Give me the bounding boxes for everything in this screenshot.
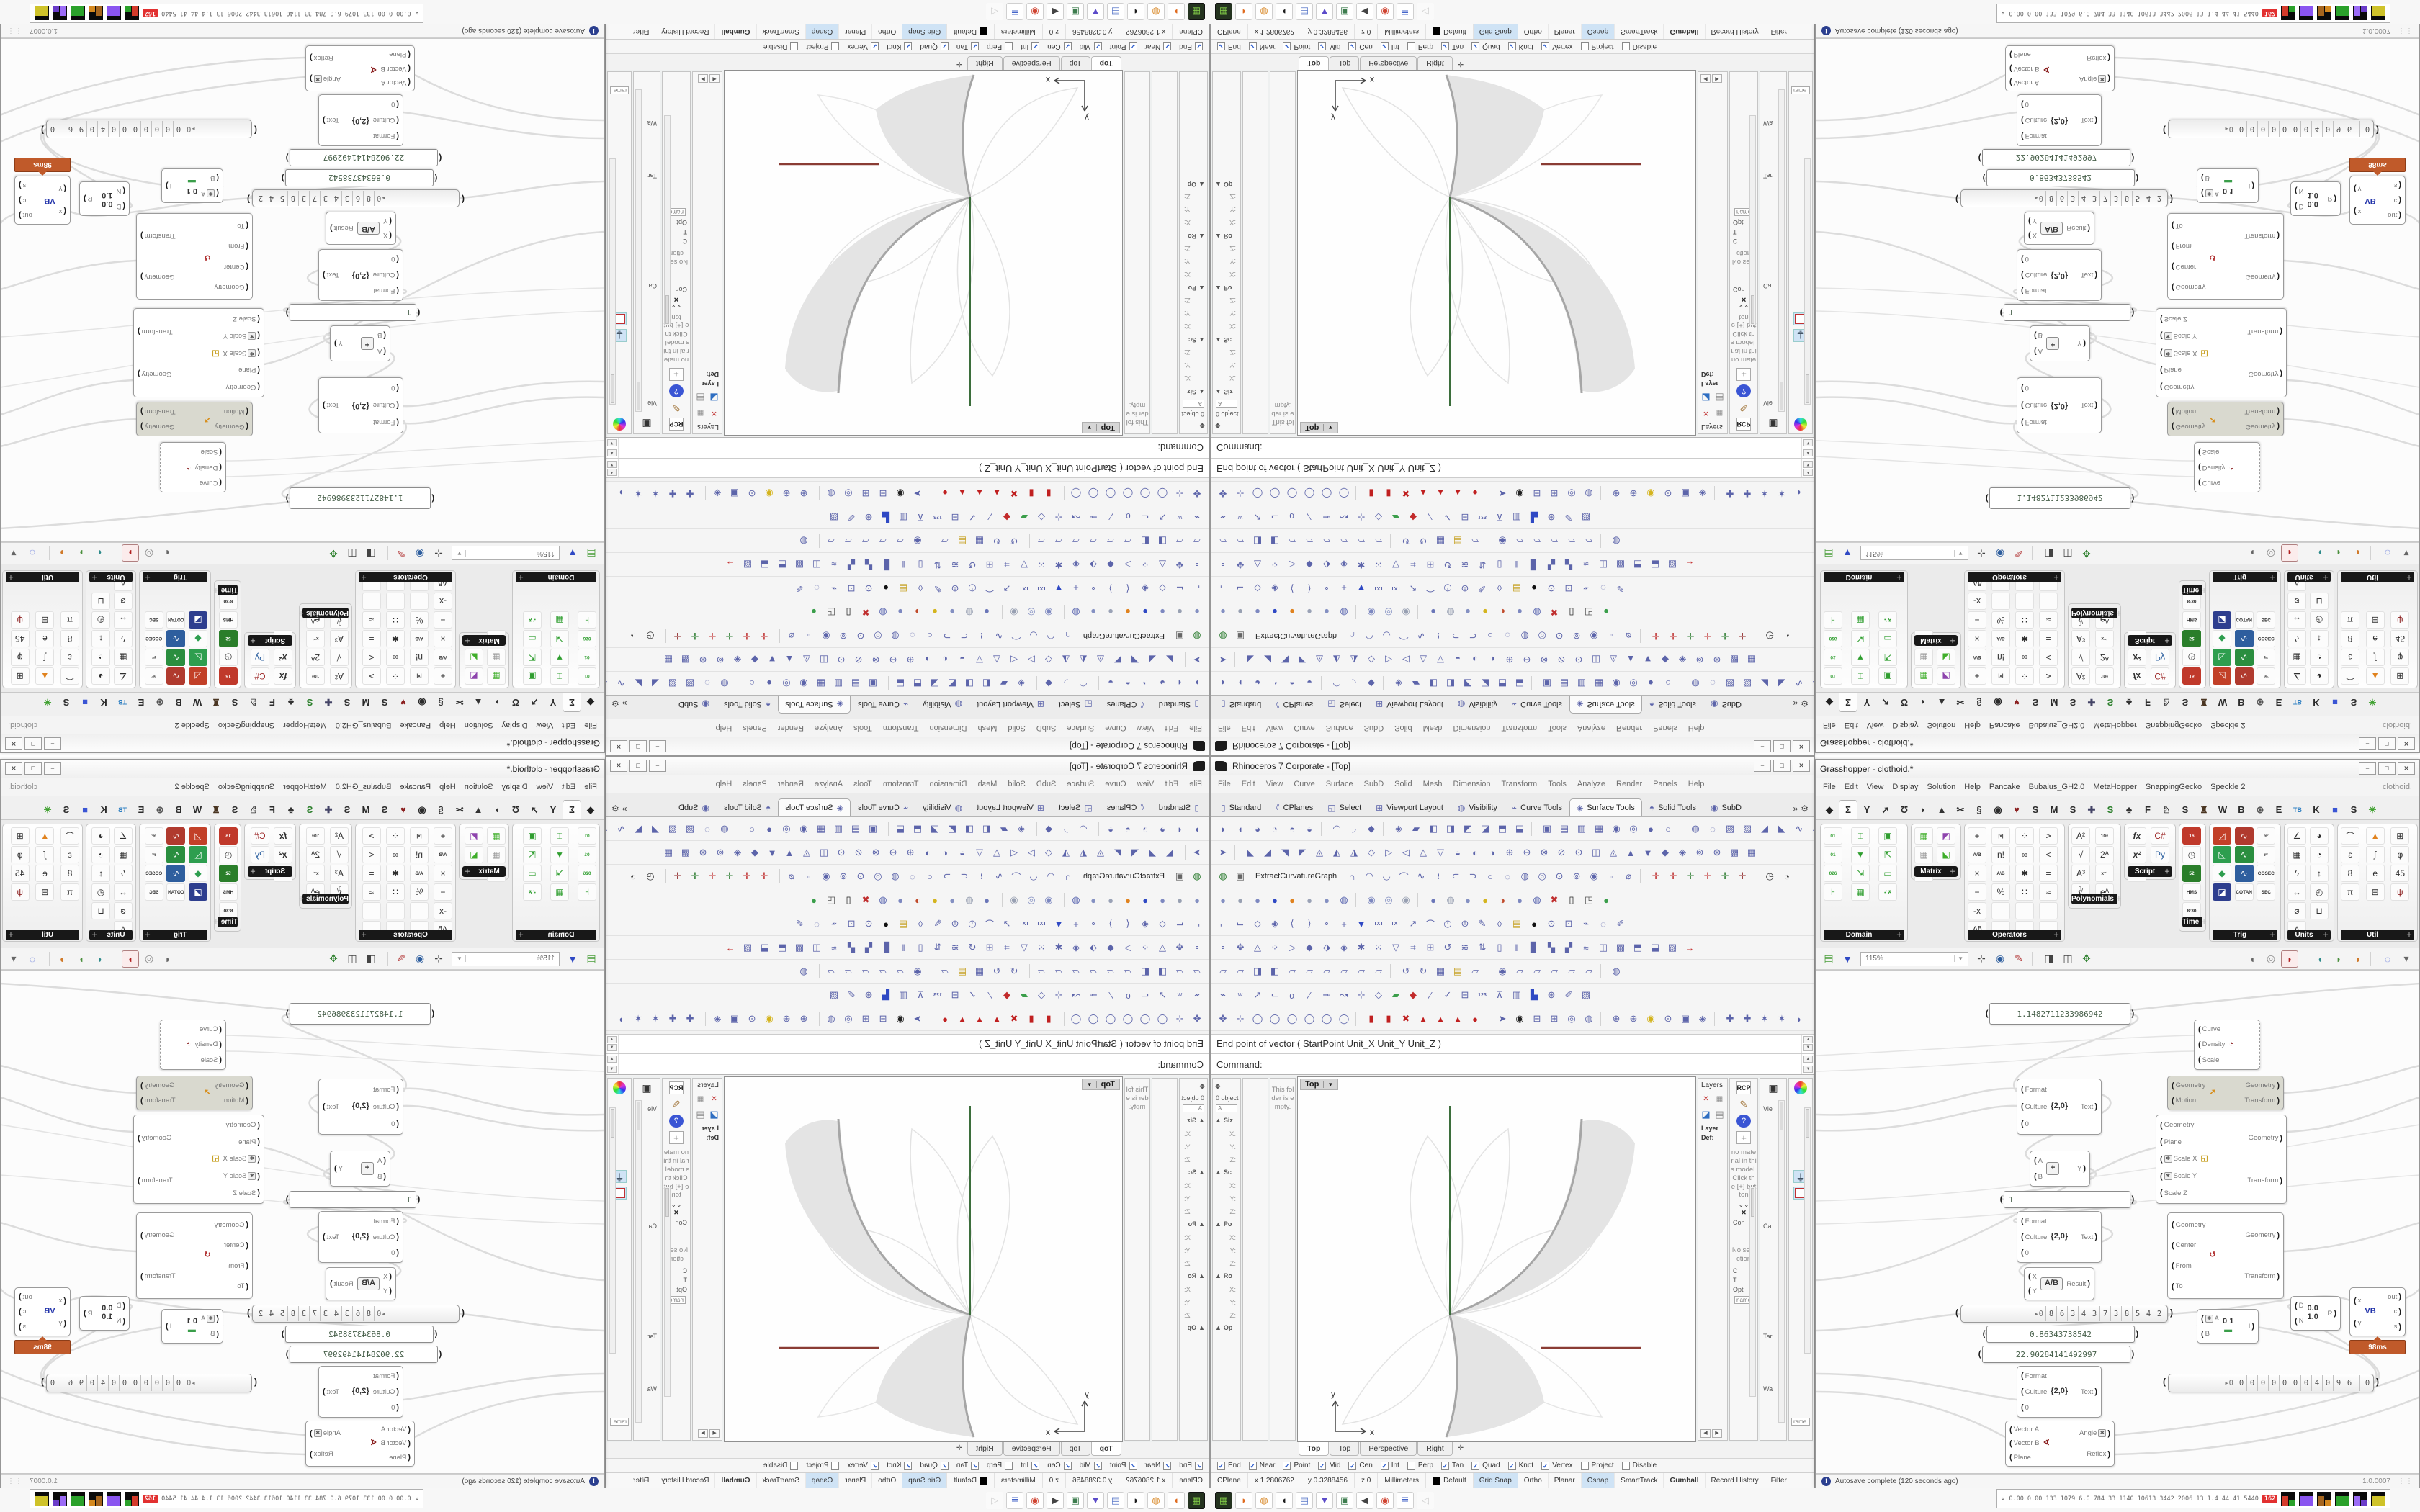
toolbar-icon[interactable]: ⊃: [939, 868, 955, 884]
menu-item[interactable]: Bubalus_GH2.0: [336, 783, 392, 791]
toolbar-icon[interactable]: ●: [1085, 604, 1101, 620]
toolbar-icon[interactable]: ◍: [717, 675, 732, 691]
number-slider[interactable]: ▸0000000040960: [2168, 120, 2374, 138]
palette-icon[interactable]: ⊟: [35, 611, 54, 629]
palette-icon[interactable]: A³: [2071, 630, 2090, 647]
toolbar-icon[interactable]: ◠: [1075, 821, 1091, 837]
toolbar-icon[interactable]: ▱: [1353, 963, 1369, 979]
toolbar-icon[interactable]: ◭: [1075, 652, 1091, 667]
format-component[interactable]: FormatCulture0{2,0}Text: [2017, 377, 2102, 433]
palette-icon[interactable]: ∫: [35, 846, 54, 863]
palette-icon[interactable]: ▦: [487, 827, 506, 845]
osnap-cen[interactable]: ✓Cen: [1047, 1462, 1071, 1470]
toolbar-icon[interactable]: ⊟: [947, 509, 963, 525]
toolbar-icon[interactable]: ▷: [1381, 845, 1397, 860]
toolbar-icon[interactable]: ⊘: [851, 845, 866, 860]
toolbar-icon[interactable]: ▱: [1529, 963, 1545, 979]
input-param[interactable]: Geometry: [223, 382, 260, 391]
toolbar-icon[interactable]: ◗: [1189, 821, 1205, 837]
toolbar-icon[interactable]: ◉: [761, 1011, 777, 1027]
toolbar-icon[interactable]: ‖: [1509, 940, 1525, 955]
toolbar-icon[interactable]: ◉: [1586, 868, 1602, 884]
scale-nu-component[interactable]: GeometryPlane✱Scale X✱Scale YScale Z◱Geo…: [2156, 1115, 2287, 1204]
viewport-tab[interactable]: Right: [1417, 56, 1453, 70]
input-param[interactable]: Format: [2021, 1372, 2047, 1380]
materials-panel[interactable]: RCP ✎ ? + no material in this model. Cli…: [662, 1078, 691, 1441]
palette-icon[interactable]: 8: [60, 630, 79, 647]
menu-item[interactable]: File: [1823, 721, 1836, 729]
toolbar-icon[interactable]: ▥: [895, 987, 911, 1003]
tab-vector[interactable]: ➚: [525, 800, 544, 819]
firefox-icon[interactable]: ◗: [1235, 4, 1252, 21]
rhino-titlebar[interactable]: Rhinoceros 7 Corporate - [Top] −□✕: [1211, 757, 1814, 775]
z-coordinate[interactable]: z 0: [1355, 24, 1378, 39]
rhinoceros-icon[interactable]: ◖: [1127, 1492, 1144, 1509]
output-param[interactable]: Result: [2066, 224, 2090, 233]
toolbar-icon[interactable]: ◷: [964, 916, 980, 932]
gh-category-tab[interactable]: TB: [113, 800, 132, 819]
gh-category-tab[interactable]: S: [2101, 693, 2120, 712]
toolbar-icon[interactable]: ◎: [779, 821, 794, 837]
palette-icon[interactable]: ⊔: [2310, 902, 2329, 919]
toolbar-icon[interactable]: TXT: [1371, 916, 1386, 932]
toolbar-icon[interactable]: ▰: [1016, 509, 1032, 525]
toolbar-icon[interactable]: ◉: [910, 963, 926, 979]
brush-icon[interactable]: ✎: [1736, 1098, 1751, 1111]
toolbar-icon[interactable]: ⌗: [999, 557, 1015, 572]
palette-icon[interactable]: 01: [1824, 846, 1842, 863]
toolbar-icon[interactable]: ▱: [1085, 963, 1101, 979]
menu-item[interactable]: Solution: [1927, 721, 1955, 729]
palette-icon[interactable]: ◩: [465, 827, 483, 845]
palette-icon[interactable]: >: [2039, 667, 2058, 685]
toolbar-icon[interactable]: ▱: [1172, 963, 1188, 979]
osnap-point[interactable]: ✓Point: [1110, 42, 1137, 50]
palette-icon[interactable]: COTAN: [2235, 611, 2254, 629]
toolbar-icon[interactable]: ◯: [1068, 485, 1084, 501]
input-param[interactable]: Scale Z: [223, 315, 260, 323]
palette-icon[interactable]: [362, 902, 381, 919]
panel-value[interactable]: 1: [2004, 1191, 2130, 1208]
move-component[interactable]: GeometryMotion➚GeometryTransform: [136, 402, 253, 436]
palette-icon[interactable]: ∿: [166, 865, 185, 882]
interval-component[interactable]: ✱AB0 1▬I: [2197, 168, 2259, 203]
palette-icon[interactable]: ↕: [91, 865, 110, 882]
number-slider[interactable]: ▸0000000040960: [46, 120, 252, 138]
command-prompt[interactable]: Command: ▲▼: [1211, 437, 1814, 459]
palette-icon[interactable]: α°: [145, 667, 163, 685]
toolbar-icon[interactable]: ◍: [1608, 963, 1624, 979]
palette-icon[interactable]: ≈: [362, 883, 381, 901]
palette-icon[interactable]: ▦: [487, 667, 506, 685]
toolbar-icon[interactable]: ◖: [1809, 485, 1814, 501]
new-viewport-tab-button[interactable]: ✛: [952, 1442, 967, 1454]
palette-icon[interactable]: HMS: [2182, 611, 2201, 629]
input-param[interactable]: ✱Scale Y: [223, 1172, 260, 1181]
x-coordinate[interactable]: x 1.2806762: [1248, 24, 1301, 39]
output-param[interactable]: Result: [330, 224, 354, 233]
toolbar-icon[interactable]: ⊡: [1561, 916, 1577, 932]
toolbar-icon[interactable]: ▱: [1319, 533, 1335, 549]
toolbar-icon[interactable]: ◍: [1443, 604, 1458, 620]
palette-icon[interactable]: C#: [2151, 827, 2169, 845]
palette-icon[interactable]: ∫: [2366, 846, 2385, 863]
gh-category-tab[interactable]: S: [300, 693, 319, 712]
gh-category-tab[interactable]: ♜: [207, 693, 225, 712]
palette-icon[interactable]: −: [434, 611, 452, 629]
toolbar-icon[interactable]: ✶: [1774, 485, 1790, 501]
input-param[interactable]: Vector B: [2009, 64, 2040, 73]
input-param[interactable]: Y: [2028, 1287, 2037, 1295]
selection-region-icon[interactable]: ◌: [2379, 950, 2396, 968]
panel-value[interactable]: 0.86343738542: [1986, 169, 2135, 186]
toolbar-icon[interactable]: ⊚: [835, 628, 851, 644]
toolbar-icon[interactable]: ◔: [1137, 675, 1153, 691]
gh-category-tab[interactable]: TB: [2288, 693, 2307, 712]
gh-category-tab[interactable]: ✚: [319, 800, 338, 819]
toolbar-icon[interactable]: ▰: [1388, 987, 1404, 1003]
toolbar-icon[interactable]: ✐: [1561, 987, 1577, 1003]
toolbar-icon[interactable]: ✖: [1546, 892, 1562, 908]
only-draw-icon[interactable]: ◖: [91, 950, 109, 968]
input-param[interactable]: Geometry: [215, 283, 248, 292]
osnap-knot[interactable]: ✓Knot: [1508, 1462, 1534, 1470]
toolbar-icon[interactable]: △: [989, 845, 1005, 860]
sketch-icon[interactable]: ✎: [393, 545, 410, 562]
display-capture-icon[interactable]: ▣: [1067, 4, 1084, 21]
toolbar-icon[interactable]: ▤: [848, 821, 864, 837]
scrollbar[interactable]: [609, 1107, 616, 1354]
toolbar-icon[interactable]: ➤: [1189, 845, 1205, 860]
cplane-pane[interactable]: CPlane: [1172, 1473, 1209, 1488]
command-prompt[interactable]: Command: ▲▼: [1211, 1053, 1814, 1075]
toolbar-icon[interactable]: ◞: [1346, 675, 1362, 691]
toolbar-icon[interactable]: ▯: [913, 557, 928, 572]
toolbar-icon[interactable]: ↝: [1068, 509, 1084, 525]
range-component[interactable]: DN0.01.0R: [2290, 1296, 2341, 1331]
toolbar-icon[interactable]: ⊗: [868, 652, 884, 667]
palette-icon[interactable]: ▼: [550, 846, 569, 863]
command-scrollbar[interactable]: ▲▼: [1801, 1035, 1814, 1053]
palette-icon[interactable]: ∿: [166, 649, 185, 666]
input-param[interactable]: Culture: [373, 1387, 399, 1396]
palette-icon[interactable]: 10ᴬ: [2095, 827, 2114, 845]
vb-script-component[interactable]: xyVBoutcs: [14, 176, 71, 225]
toolbar-icon[interactable]: ⊞: [1546, 1011, 1562, 1027]
toolbar-icon[interactable]: ✱: [1353, 557, 1369, 572]
toolbar-icon[interactable]: ⁙: [1034, 940, 1049, 955]
chrome-icon[interactable]: ◉: [1026, 1492, 1044, 1509]
osnap-end[interactable]: ✓End: [1217, 42, 1241, 50]
menu-item[interactable]: Bubalus_GH2.0: [336, 721, 392, 729]
palette-group-label[interactable]: Util＋: [6, 572, 79, 582]
palette-icon[interactable]: [2015, 593, 2034, 610]
toolbar-icon[interactable]: ⊖: [1519, 845, 1535, 860]
toolbar-icon[interactable]: ↗: [1250, 509, 1265, 525]
gumball-icon[interactable]: ◨: [2040, 950, 2058, 968]
output-param[interactable]: s: [19, 181, 32, 189]
interval-component[interactable]: ✱AB0 1▬I: [2197, 1309, 2259, 1344]
toolbar-icon[interactable]: ✐: [843, 509, 859, 525]
osnap-vertex[interactable]: ✓Vertex: [847, 42, 878, 50]
toolbar-icon[interactable]: ◳: [1581, 892, 1597, 908]
toolbar-icon[interactable]: ◤: [1110, 652, 1126, 667]
toolbar-icon[interactable]: ◎: [1381, 604, 1397, 620]
blender-icon[interactable]: ◍: [1147, 1492, 1165, 1509]
rhino-titlebar[interactable]: Rhinoceros 7 Corporate - [Top] −□✕: [606, 737, 1209, 755]
palette-icon[interactable]: ▦: [114, 846, 133, 863]
menu-item[interactable]: Help: [716, 724, 732, 732]
toolbar-icon[interactable]: ▥: [1574, 821, 1590, 837]
toolbar-icon[interactable]: ➤: [1215, 845, 1231, 860]
palette-icon[interactable]: ◕: [91, 827, 110, 845]
output-param[interactable]: Text: [2081, 1102, 2097, 1111]
toolbar-icon[interactable]: ✖: [1006, 485, 1022, 501]
palette-icon[interactable]: ↕: [2310, 630, 2329, 647]
toolbar-icon[interactable]: ⟨: [1120, 916, 1136, 932]
toolbar-icon[interactable]: ●: [1467, 485, 1483, 501]
display-panel[interactable]: [1242, 71, 1268, 434]
toolbar-icon[interactable]: ◷: [642, 628, 658, 644]
menu-item[interactable]: Transform: [1502, 780, 1538, 788]
sketch-icon[interactable]: ✎: [2010, 950, 2027, 968]
toolbar-icon[interactable]: ▥: [1574, 675, 1590, 691]
toolbar-icon[interactable]: ◆: [1657, 652, 1673, 667]
toolbar-icon[interactable]: ○: [744, 821, 760, 837]
toolbar-icon[interactable]: ⊟: [875, 485, 891, 501]
menu-item[interactable]: Render: [778, 724, 804, 732]
palette-icon[interactable]: ⌶: [550, 827, 569, 845]
toolbar-icon[interactable]: ◯: [1284, 485, 1300, 501]
toolbar-icon[interactable]: ◩: [1460, 675, 1476, 691]
input-param[interactable]: Scale Z: [2160, 1189, 2197, 1197]
toolbar-icon[interactable]: ⌙: [1267, 509, 1283, 525]
toolbar-icon[interactable]: ◉: [1494, 533, 1510, 549]
toolbar-icon[interactable]: ●: [1172, 892, 1188, 908]
toolbar-icon[interactable]: ⊼: [1492, 509, 1507, 525]
range-component[interactable]: DN0.01.0R: [79, 1296, 130, 1331]
toolbar-icon[interactable]: ▰: [996, 821, 1012, 837]
menu-item[interactable]: Dimension: [1453, 780, 1491, 788]
viewport-tab[interactable]: Top: [1330, 56, 1359, 70]
input-param[interactable]: Vector A: [2009, 1426, 2040, 1434]
toolbar-icon[interactable]: ✎: [930, 580, 946, 596]
command-scrollbar[interactable]: ▲▼: [1801, 1054, 1814, 1074]
gh-category-tab[interactable]: S: [225, 693, 244, 712]
toolbar-icon[interactable]: ●: [1526, 580, 1542, 596]
gh-category-tab[interactable]: S: [300, 800, 319, 819]
toolbar-icon[interactable]: ▲: [972, 485, 987, 501]
gh-category-tab[interactable]: B: [2232, 693, 2251, 712]
toolbar-tab-surface-tools[interactable]: ◈Surface Tools: [778, 696, 851, 714]
output-param[interactable]: R: [84, 194, 93, 203]
toolbar-icon[interactable]: ●: [937, 485, 953, 501]
toolbar-icon[interactable]: ⬒: [1494, 821, 1510, 837]
toolbar-icon[interactable]: ▣: [1539, 821, 1555, 837]
toolbar-icon[interactable]: ●: [761, 821, 777, 837]
toolbar-icon[interactable]: ◇: [1155, 580, 1170, 596]
palette-icon[interactable]: 16: [219, 827, 238, 845]
input-param[interactable]: ✱A: [2201, 1315, 2219, 1323]
toolbar-icon[interactable]: ⁘: [1267, 940, 1283, 955]
cplane-pane[interactable]: CPlane: [1211, 1473, 1248, 1488]
palette-icon[interactable]: +: [1968, 667, 1986, 685]
gh-category-tab[interactable]: ♘: [2157, 693, 2176, 712]
toolbar-icon[interactable]: ▲: [1623, 652, 1639, 667]
gh-category-tab[interactable]: M: [357, 693, 375, 712]
scrollbar[interactable]: [635, 1100, 642, 1423]
monitor-icon[interactable]: ▣: [640, 1081, 654, 1094]
minimize-button[interactable]: −: [44, 762, 61, 775]
toolbar-icon[interactable]: ↗: [1250, 987, 1265, 1003]
toolbar-icon[interactable]: ⌙: [1172, 916, 1188, 932]
toolbar-icon[interactable]: ▱: [858, 963, 874, 979]
palette-icon[interactable]: ▲: [2366, 827, 2385, 845]
palette-icon[interactable]: ⊦: [578, 883, 596, 901]
toolbar-icon[interactable]: ⊜: [1457, 580, 1473, 596]
tab-maths[interactable]: Σ: [563, 693, 581, 712]
input-param[interactable]: 0: [373, 1248, 399, 1257]
toolbar-icon[interactable]: ▦: [660, 652, 676, 667]
palette-icon[interactable]: ↕: [91, 630, 110, 647]
toolbar-icon[interactable]: ◮: [1346, 652, 1362, 667]
toolbar-icon[interactable]: ●: [944, 892, 960, 908]
toolbar-icon[interactable]: ▧: [1664, 940, 1680, 955]
selection-region-icon[interactable]: ◌: [24, 545, 41, 562]
toolbar-tab-standard[interactable]: ▯Standard: [1152, 798, 1206, 816]
toolbar-icon[interactable]: ↗: [1405, 916, 1421, 932]
output-param[interactable]: out: [19, 1292, 32, 1301]
palette-icon[interactable]: 52: [219, 630, 238, 647]
toolbar-icon[interactable]: ▷: [1120, 940, 1136, 955]
z-coordinate[interactable]: z 0: [1355, 1473, 1378, 1488]
toolbar-icon[interactable]: ◈: [709, 1011, 725, 1027]
toolbar-icon[interactable]: ✓: [964, 987, 980, 1003]
toolbar-icon[interactable]: ▩: [1613, 557, 1628, 572]
toolbar-icon[interactable]: ▧: [1664, 557, 1680, 572]
osnap-end[interactable]: ✓End: [1179, 42, 1203, 50]
toolbar-icon[interactable]: α: [1284, 987, 1300, 1003]
toolbar-icon[interactable]: ◷: [964, 580, 980, 596]
tab-kangaroo[interactable]: ♥: [2007, 800, 2026, 819]
palette-icon[interactable]: A²: [330, 827, 349, 845]
toolbar-icon[interactable]: ◈: [1675, 845, 1690, 860]
toolbar-icon[interactable]: ▱: [1809, 821, 1814, 837]
toolbar-icon[interactable]: ○: [922, 868, 938, 884]
gh-category-tab[interactable]: F: [2138, 693, 2157, 712]
palette-icon[interactable]: π: [60, 611, 79, 629]
palette-icon[interactable]: ⊞: [2390, 667, 2409, 685]
panel-value[interactable]: 0.86343738542: [285, 1326, 434, 1343]
palette-icon[interactable]: ∠: [114, 667, 133, 685]
toolbar-icon[interactable]: ▩: [792, 557, 807, 572]
toolbar-icon[interactable]: ▧: [1578, 509, 1594, 525]
palette-icon[interactable]: φ: [11, 846, 30, 863]
input-param[interactable]: X: [383, 1272, 392, 1281]
palette-icon[interactable]: A/B: [434, 846, 452, 863]
toolbar-icon[interactable]: ●: [806, 892, 822, 908]
toolbar-icon[interactable]: ▥: [895, 509, 911, 525]
toolbar-icon[interactable]: ⇅: [930, 557, 946, 572]
cplane-pane[interactable]: CPlane: [1211, 24, 1248, 39]
menu-item[interactable]: Tools: [1548, 780, 1567, 788]
palette-icon[interactable]: x²: [2128, 649, 2146, 666]
toolbar-icon[interactable]: ◆: [747, 845, 763, 860]
color-wheel-icon[interactable]: [613, 1081, 626, 1094]
scrollbar[interactable]: [664, 115, 671, 325]
gh-category-tab[interactable]: S: [338, 693, 357, 712]
toolbar-icon[interactable]: ▼: [1640, 845, 1656, 860]
input-param[interactable]: Density: [195, 463, 222, 472]
preview-eye-icon[interactable]: ◉: [411, 545, 429, 562]
palette-icon[interactable]: ◆: [2213, 630, 2231, 647]
toolbar-icon[interactable]: ▽: [1388, 557, 1404, 572]
output-param[interactable]: Text: [2081, 271, 2097, 279]
toolbar-icon[interactable]: ◈: [709, 485, 725, 501]
toolbar-icon[interactable]: ◗: [613, 1011, 629, 1027]
toolbar-icon[interactable]: ⁙: [1034, 557, 1049, 572]
toolbar-icon[interactable]: ▽: [1433, 652, 1448, 667]
viewport-label[interactable]: Top▼: [1300, 422, 1338, 433]
menu-item[interactable]: SubD: [1364, 724, 1384, 732]
notepad-icon[interactable]: ▤: [1296, 1492, 1313, 1509]
input-param[interactable]: Culture: [2021, 1102, 2047, 1111]
toolbar-icon[interactable]: 123: [1474, 509, 1490, 525]
toolbar-icon[interactable]: ◆: [747, 652, 763, 667]
palette-icon[interactable]: ◷: [219, 649, 238, 666]
toolbar-icon[interactable]: ⊡: [843, 580, 859, 596]
rcp-icon[interactable]: RCP: [1736, 1081, 1751, 1094]
palette-icon[interactable]: COSEC: [2257, 630, 2275, 647]
input-param[interactable]: Format: [373, 418, 399, 427]
gh-canvas[interactable]: 1.1482711233986942FormatCulture0{2,0}Tex…: [1, 38, 604, 542]
layer-tools-icon[interactable]: ◪: [708, 1108, 720, 1121]
palette-group-label[interactable]: Domain＋: [1824, 572, 1904, 582]
palette-icon[interactable]: ψ: [11, 883, 30, 901]
toolbar-icon[interactable]: ✶: [1757, 1011, 1773, 1027]
gh-category-tab[interactable]: ■: [2326, 693, 2344, 712]
palette-icon[interactable]: ◕: [91, 667, 110, 685]
palette-icon[interactable]: 16: [2182, 667, 2201, 685]
toolbar-icon[interactable]: ≈: [1578, 940, 1594, 955]
toolbar-icon[interactable]: ◍: [1443, 892, 1458, 908]
canvas-zoom-select[interactable]: 115%▼: [452, 952, 560, 966]
toolbar-icon[interactable]: ▲: [1623, 845, 1639, 860]
viewport-tab[interactable]: Top: [1299, 1442, 1329, 1456]
maximize-button[interactable]: □: [2378, 737, 2396, 750]
toolbar-icon[interactable]: ∕: [1103, 987, 1119, 1003]
toolbar-icon[interactable]: ↺: [1006, 533, 1022, 549]
toolbar-icon[interactable]: ▼: [1051, 580, 1067, 596]
toolbar-icon[interactable]: ⬒: [1630, 940, 1646, 955]
palette-icon[interactable]: rᶜ: [145, 846, 163, 863]
input-param[interactable]: D: [116, 1302, 125, 1310]
toolbar-icon[interactable]: ⬒: [774, 557, 790, 572]
toolbar-icon[interactable]: ◆: [1301, 940, 1317, 955]
toolbar-icon[interactable]: ▱: [1371, 533, 1386, 549]
input-param[interactable]: B: [201, 174, 219, 183]
toolbar-icon[interactable]: ◆: [1363, 675, 1379, 691]
tab-intersect[interactable]: ✂: [450, 693, 469, 712]
palette-icon[interactable]: 45: [11, 630, 30, 647]
input-param[interactable]: 0: [2021, 255, 2047, 264]
toolbar-icon[interactable]: ▲: [1415, 485, 1431, 501]
toolbar-icon[interactable]: ●: [1643, 675, 1659, 691]
input-param[interactable]: Culture: [373, 116, 399, 125]
palette-icon[interactable]: ∷: [2015, 883, 2034, 901]
scroll-document-icon[interactable]: ≣: [1006, 4, 1023, 21]
palette-icon[interactable]: [1991, 593, 2010, 610]
